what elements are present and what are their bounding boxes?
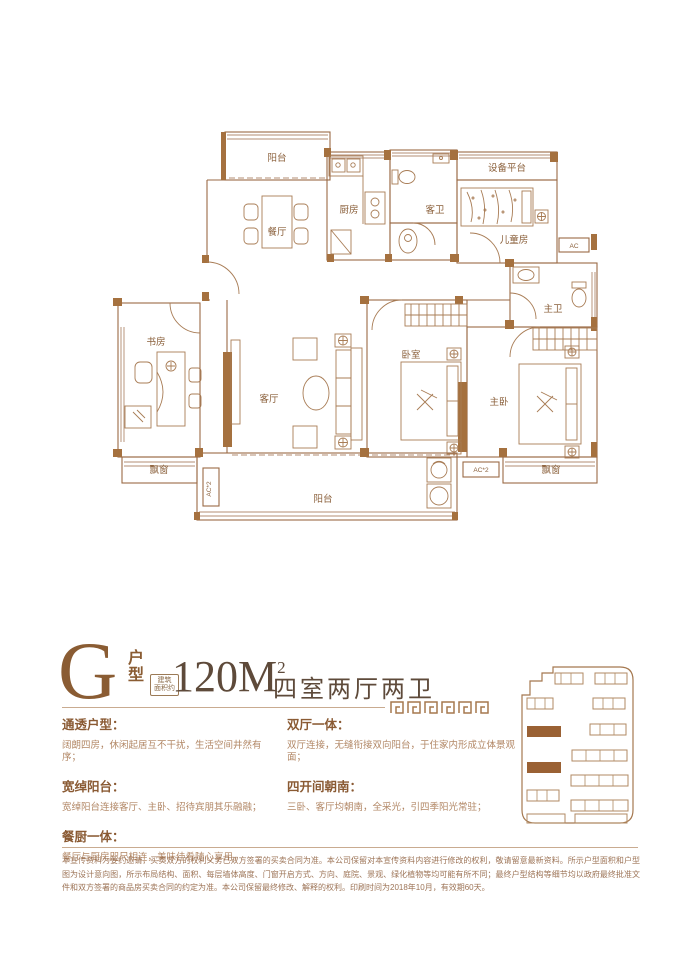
room-label-living: 客厅 [259, 393, 279, 405]
feature-item: 通透户型： 阔朗四房，休闲起居互不干扰，生活空间井然有序； [62, 714, 278, 764]
feature-desc: 三卧、客厅均朝南，全采光，引四季阳光常驻； [287, 802, 515, 814]
features-column-right: 双厅一体： 双厅连接，无缝衔接双向阳台，于住家内形成立体景观面； 四开间朝南： … [287, 714, 515, 826]
room-label-bedroom: 卧室 [401, 349, 420, 361]
site-map [519, 664, 639, 830]
ac-label-bottom: AC*2 [473, 467, 489, 474]
room-label-balcony-top: 阳台 [267, 152, 286, 164]
unit-type-label: 户 型 [128, 650, 144, 684]
unit-letter: G [58, 630, 117, 712]
feature-title: 餐厨一体： [62, 826, 278, 845]
meander-ornament [390, 700, 492, 715]
feature-item: 双厅一体： 双厅连接，无缝衔接双向阳台，于住家内形成立体景观面； [287, 714, 515, 764]
feature-desc: 阔朗四房，休闲起居互不干扰，生活空间井然有序； [62, 740, 278, 764]
flyer-page: 阳台 餐厅 厨房 客卫 设备平台 儿童房 主卫 书房 客厅 卧室 主卧 飘窗 飘… [0, 0, 700, 963]
room-label-master-bedroom: 主卧 [489, 396, 509, 408]
header-divider [62, 707, 385, 708]
unit-type-char-1: 户 [128, 650, 144, 667]
feature-title: 四开间朝南： [287, 776, 515, 795]
room-label-equip-platform: 设备平台 [488, 162, 526, 174]
unit-type-char-2: 型 [128, 667, 144, 684]
ac-label-left: AC*2 [206, 481, 213, 497]
room-label-bay-window-right: 飘窗 [541, 464, 560, 476]
area-value: 120M2 [172, 655, 286, 699]
disclaimer-text: 本宣传资料为要约邀请，买卖双方的权利义务已双方签署的买卖合同为准。本公司保留对本… [62, 854, 640, 895]
room-label-study: 书房 [146, 336, 165, 348]
ac-label-right: AC [569, 243, 578, 250]
feature-desc: 宽绰阳台连接客厅、主卧、招待宾朋其乐融融； [62, 802, 278, 814]
features-column-left: 通透户型： 阔朗四房，休闲起居互不干扰，生活空间井然有序； 宽绰阳台： 宽绰阳台… [62, 714, 278, 876]
feature-item: 宽绰阳台： 宽绰阳台连接客厅、主卧、招待宾朋其乐融融； [62, 776, 278, 814]
layout-description: 四室两厅两卫 [273, 669, 435, 704]
room-label-kids-room: 儿童房 [500, 234, 529, 246]
room-label-guest-bath: 客卫 [425, 204, 445, 216]
room-label-master-bath: 主卫 [543, 303, 563, 315]
site-map-building-units [535, 673, 615, 811]
footer-divider [62, 847, 638, 848]
floor-plan: 阳台 餐厅 厨房 客卫 设备平台 儿童房 主卫 书房 客厅 卧室 主卧 飘窗 飘… [95, 112, 625, 562]
floor-plan-ac-labels: AC AC*2 AC*2 [206, 243, 579, 497]
site-map-highlighted-buildings [527, 726, 561, 773]
floor-plan-windows [121, 135, 595, 516]
feature-title: 通透户型： [62, 714, 278, 733]
room-label-balcony-bottom: 阳台 [313, 493, 332, 505]
feature-title: 宽绰阳台： [62, 776, 278, 795]
feature-desc: 双厅连接，无缝衔接双向阳台，于住家内形成立体景观面； [287, 740, 515, 764]
room-label-kitchen: 厨房 [339, 204, 358, 216]
feature-title: 双厅一体： [287, 714, 515, 733]
room-label-dining: 餐厅 [267, 226, 287, 238]
room-label-bay-window-left: 飘窗 [149, 464, 168, 476]
feature-item: 四开间朝南： 三卧、客厅均朝南，全采光，引四季阳光常驻； [287, 776, 515, 814]
